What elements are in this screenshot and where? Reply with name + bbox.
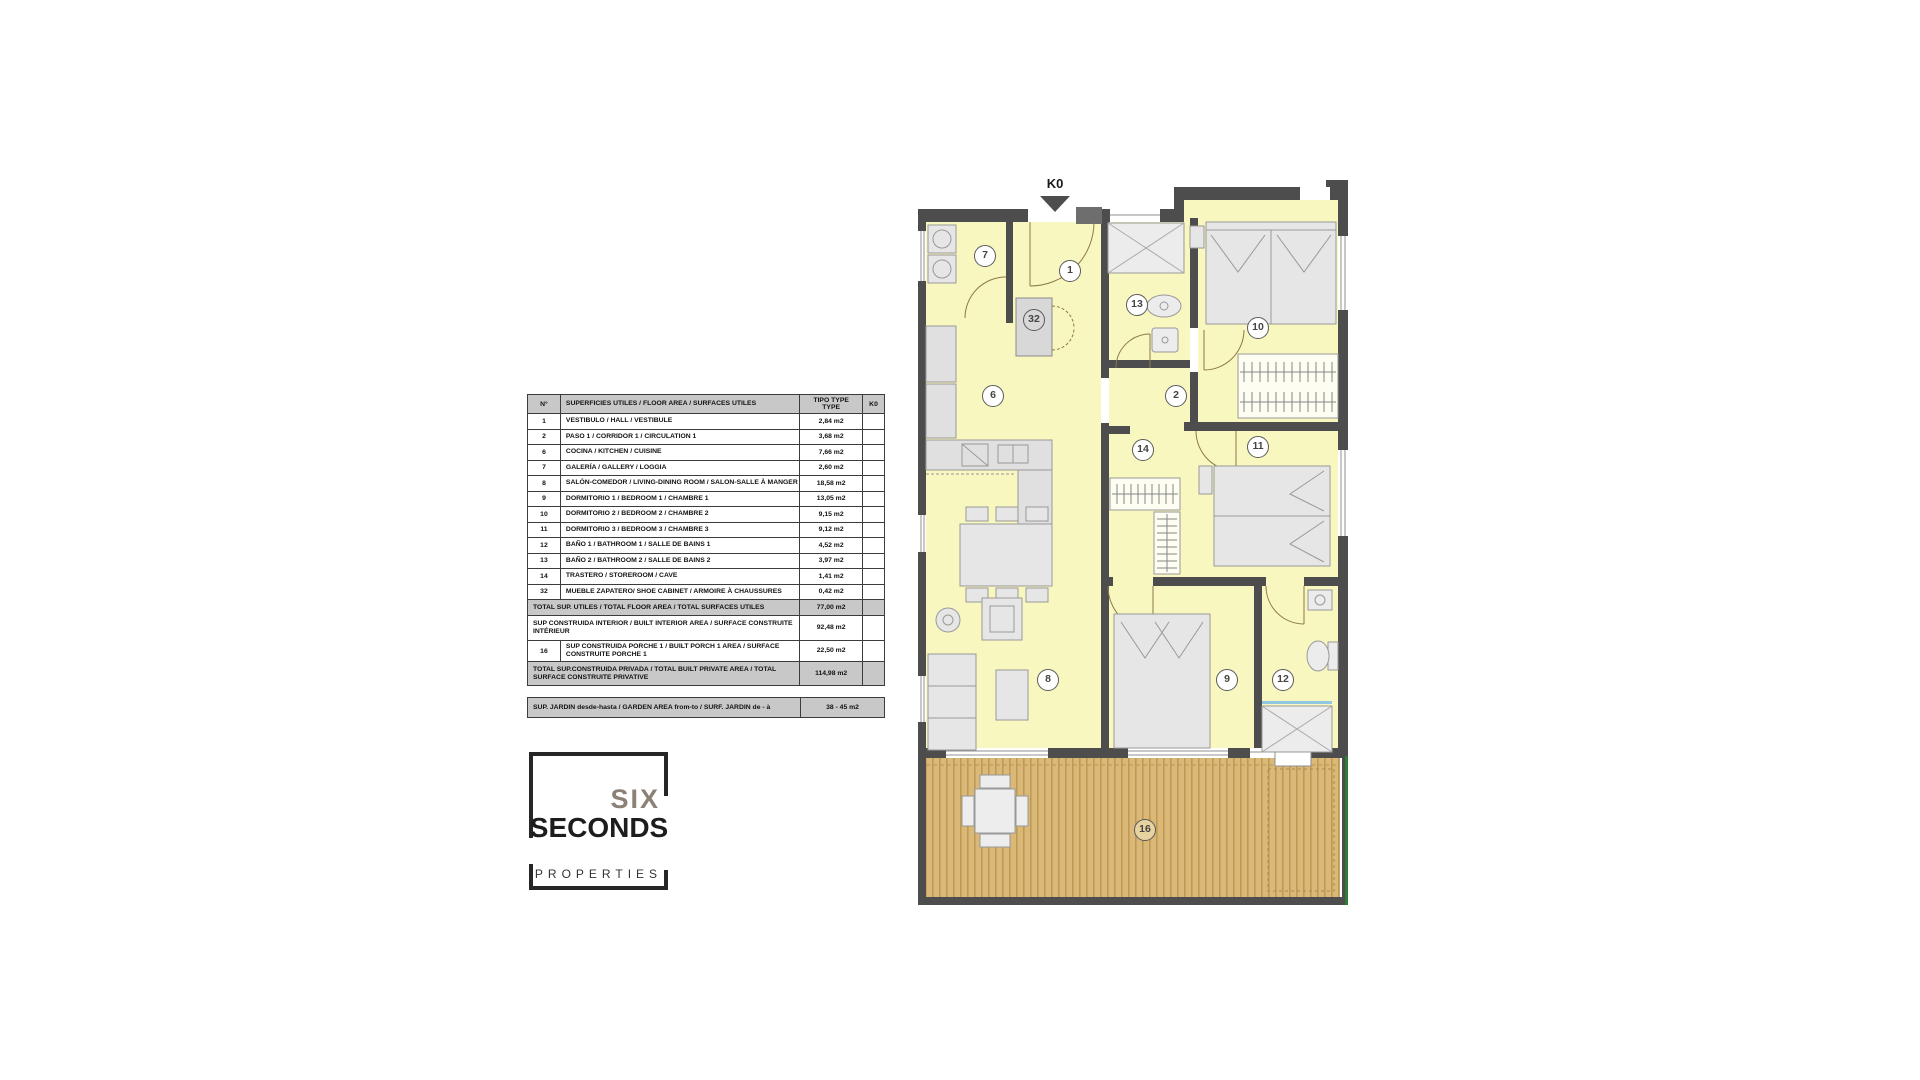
table-row: 2 PASO 1 / CORRIDOR 1 / CIRCULATION 1 3,… (528, 430, 884, 446)
room-label-2: 2 (1165, 385, 1187, 407)
floor-plan: K0 7 1 13 10 32 6 2 14 11 8 9 12 16 (918, 178, 1348, 910)
row-value: 13,05 m2 (800, 492, 863, 507)
row-num: 6 (528, 445, 561, 460)
garden-value: 38 - 45 m2 (801, 698, 884, 717)
row-k0 (863, 585, 884, 600)
table-row: 11 DORMITORIO 3 / BEDROOM 3 / CHAMBRE 3 … (528, 523, 884, 539)
row-label: VESTIBULO / HALL / VESTIBULE (561, 414, 800, 429)
row-label: SALÓN-COMEDOR / LIVING-DINING ROOM / SAL… (561, 476, 800, 491)
total-value: 77,00 m2 (800, 600, 863, 615)
row-num: 7 (528, 461, 561, 476)
row-k0 (863, 616, 884, 640)
row-label: DORMITORIO 1 / BEDROOM 1 / CHAMBRE 1 (561, 492, 800, 507)
row-value: 2,84 m2 (800, 414, 863, 429)
areas-table: N° SUPERFICIES UTILES / FLOOR AREA / SUR… (527, 394, 885, 686)
total-floor-area-row: TOTAL SUP. UTILES / TOTAL FLOOR AREA / T… (528, 600, 884, 616)
row-k0 (863, 430, 884, 445)
porch-label: SUP CONSTRUIDA PORCHE 1 / BUILT PORCH 1 … (561, 641, 800, 661)
porch-num: 16 (528, 641, 561, 661)
table-row: 13 BAÑO 2 / BATHROOM 2 / SALLE DE BAINS … (528, 554, 884, 570)
row-value: 9,12 m2 (800, 523, 863, 538)
header-desc: SUPERFICIES UTILES / FLOOR AREA / SURFAC… (561, 395, 800, 413)
room-label-1: 1 (1059, 260, 1081, 282)
row-value: 0,42 m2 (800, 585, 863, 600)
logo-six: SIX (610, 784, 660, 815)
row-k0 (863, 414, 884, 429)
row-label: PASO 1 / CORRIDOR 1 / CIRCULATION 1 (561, 430, 800, 445)
row-value: 4,52 m2 (800, 538, 863, 553)
row-value: 3,68 m2 (800, 430, 863, 445)
table-row: 9 DORMITORIO 1 / BEDROOM 1 / CHAMBRE 1 1… (528, 492, 884, 508)
table-header-row: N° SUPERFICIES UTILES / FLOOR AREA / SUR… (528, 395, 884, 414)
room-label-32: 32 (1023, 309, 1045, 331)
row-value: 9,15 m2 (800, 507, 863, 522)
row-num: 12 (528, 538, 561, 553)
logo-properties: PROPERTIES (529, 867, 668, 881)
row-k0 (863, 492, 884, 507)
row-label: GALERÍA / GALLERY / LOGGIA (561, 461, 800, 476)
room-label-10: 10 (1247, 317, 1269, 339)
row-label: DORMITORIO 3 / BEDROOM 3 / CHAMBRE 3 (561, 523, 800, 538)
table-row: 7 GALERÍA / GALLERY / LOGGIA 2,60 m2 (528, 461, 884, 477)
table-row: 12 BAÑO 1 / BATHROOM 1 / SALLE DE BAINS … (528, 538, 884, 554)
row-k0 (863, 523, 884, 538)
header-type-line1: TIPO TYPE (813, 397, 849, 404)
page-canvas: { "table": { "header": { "col_num": "N°"… (0, 0, 1920, 1080)
row-num: 8 (528, 476, 561, 491)
total-private-row: TOTAL SUP.CONSTRUIDA PRIVADA / TOTAL BUI… (528, 662, 884, 685)
row-label: BAÑO 2 / BATHROOM 2 / SALLE DE BAINS 2 (561, 554, 800, 569)
room-label-16: 16 (1134, 819, 1156, 841)
built-interior-value: 92,48 m2 (800, 616, 863, 640)
row-label: TRASTERO / STOREROOM / CAVE (561, 569, 800, 584)
garden-label: SUP. JARDIN desde-hasta / GARDEN AREA fr… (528, 698, 801, 717)
porch-value: 22,50 m2 (800, 641, 863, 661)
row-num: 1 (528, 414, 561, 429)
six-seconds-logo: SIX SECONDS PROPERTIES (529, 752, 668, 890)
row-num: 13 (528, 554, 561, 569)
k0-marker: K0 (1038, 176, 1072, 191)
total-private-value: 114,98 m2 (800, 662, 863, 685)
room-label-12: 12 (1272, 669, 1294, 691)
built-interior-row: SUP CONSTRUIDA INTERIOR / BUILT INTERIOR… (528, 616, 884, 641)
row-num: 9 (528, 492, 561, 507)
garden-area-row: SUP. JARDIN desde-hasta / GARDEN AREA fr… (527, 697, 885, 718)
row-num: 2 (528, 430, 561, 445)
row-k0 (863, 476, 884, 491)
table-row: 32 MUEBLE ZAPATERO/ SHOE CABINET / ARMOI… (528, 585, 884, 601)
table-row: 10 DORMITORIO 2 / BEDROOM 2 / CHAMBRE 2 … (528, 507, 884, 523)
row-k0 (863, 554, 884, 569)
header-type-line2: TYPE (822, 404, 840, 411)
row-k0 (863, 662, 884, 685)
room-label-6: 6 (982, 385, 1004, 407)
room-label-7: 7 (974, 245, 996, 267)
porch-row: 16 SUP CONSTRUIDA PORCHE 1 / BUILT PORCH… (528, 641, 884, 662)
row-label: DORMITORIO 2 / BEDROOM 2 / CHAMBRE 2 (561, 507, 800, 522)
room-label-11: 11 (1247, 436, 1269, 458)
row-k0 (863, 600, 884, 615)
table-row: 6 COCINA / KITCHEN / CUISINE 7,66 m2 (528, 445, 884, 461)
row-value: 1,41 m2 (800, 569, 863, 584)
row-num: 32 (528, 585, 561, 600)
table-row: 14 TRASTERO / STOREROOM / CAVE 1,41 m2 (528, 569, 884, 585)
total-private-label: TOTAL SUP.CONSTRUIDA PRIVADA / TOTAL BUI… (528, 662, 800, 685)
row-k0 (863, 461, 884, 476)
header-num: N° (528, 395, 561, 413)
row-k0 (863, 507, 884, 522)
header-type: TIPO TYPE TYPE (800, 395, 863, 413)
header-k0: K0 (863, 395, 884, 413)
row-label: MUEBLE ZAPATERO/ SHOE CABINET / ARMOIRE … (561, 585, 800, 600)
row-k0 (863, 445, 884, 460)
row-label: COCINA / KITCHEN / CUISINE (561, 445, 800, 460)
table-row: 8 SALÓN-COMEDOR / LIVING-DINING ROOM / S… (528, 476, 884, 492)
row-value: 3,97 m2 (800, 554, 863, 569)
room-label-14: 14 (1132, 439, 1154, 461)
row-k0 (863, 569, 884, 584)
row-value: 2,60 m2 (800, 461, 863, 476)
row-k0 (863, 641, 884, 661)
logo-seconds: SECONDS (517, 812, 681, 844)
row-value: 7,66 m2 (800, 445, 863, 460)
built-interior-label: SUP CONSTRUIDA INTERIOR / BUILT INTERIOR… (528, 616, 800, 640)
floor-plan-drawing (918, 178, 1348, 910)
row-k0 (863, 538, 884, 553)
row-num: 14 (528, 569, 561, 584)
row-num: 11 (528, 523, 561, 538)
row-label: BAÑO 1 / BATHROOM 1 / SALLE DE BAINS 1 (561, 538, 800, 553)
total-label: TOTAL SUP. UTILES / TOTAL FLOOR AREA / T… (528, 600, 800, 615)
row-num: 10 (528, 507, 561, 522)
row-value: 18,58 m2 (800, 476, 863, 491)
room-label-8: 8 (1037, 669, 1059, 691)
room-label-9: 9 (1216, 669, 1238, 691)
table-row: 1 VESTIBULO / HALL / VESTIBULE 2,84 m2 (528, 414, 884, 430)
room-label-13: 13 (1126, 294, 1148, 316)
